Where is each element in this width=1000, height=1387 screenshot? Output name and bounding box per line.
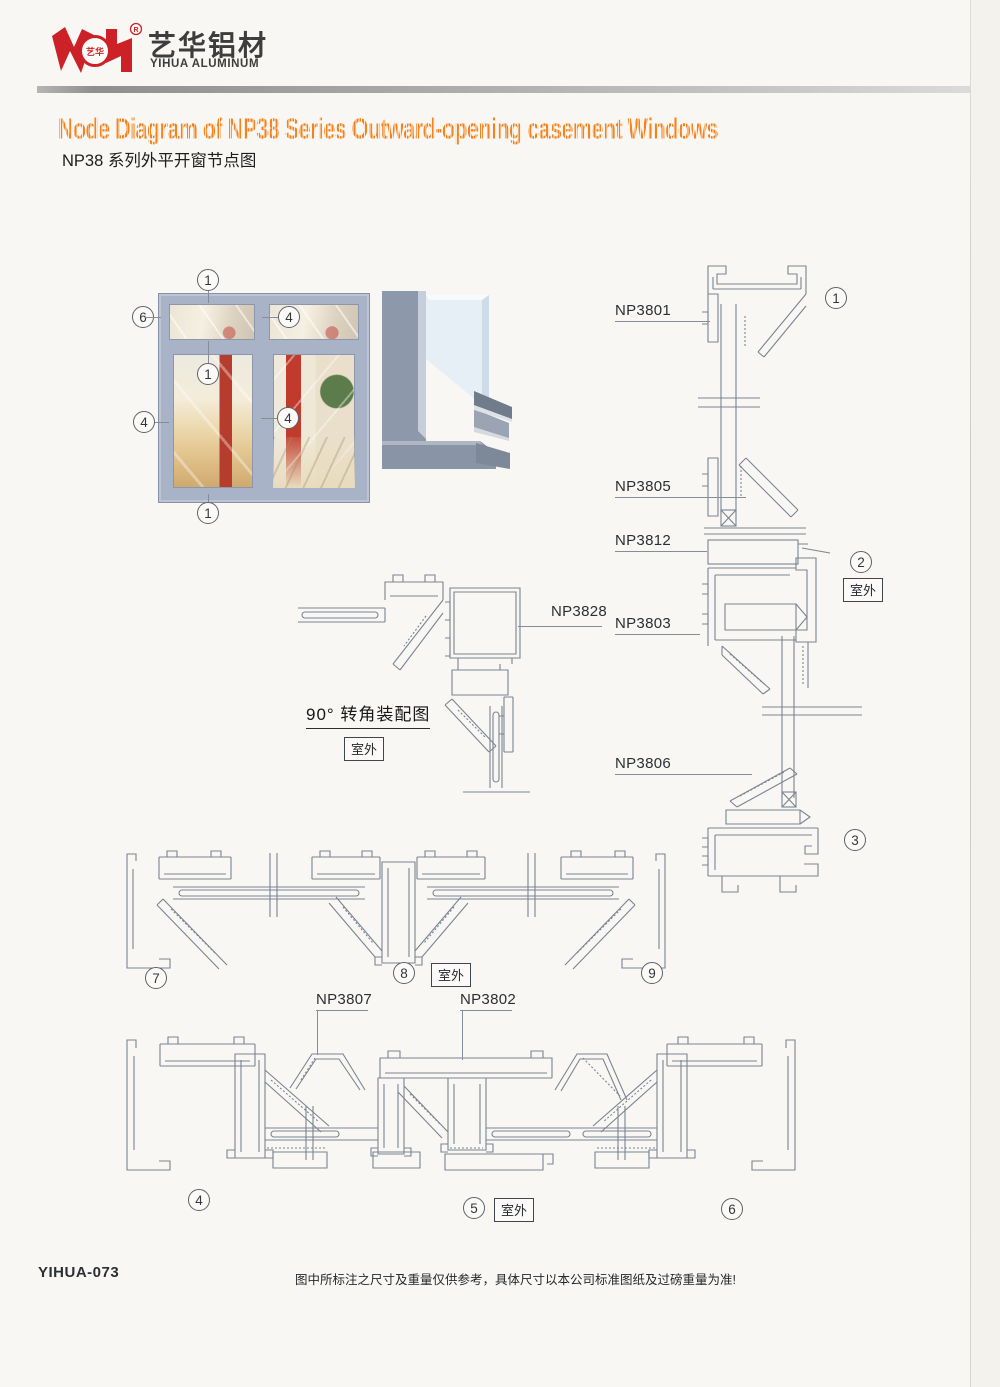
- callout-text: 2: [857, 555, 865, 570]
- callout-text: 1: [832, 291, 840, 306]
- header-divider: [37, 86, 985, 93]
- profile-label-np3806: NP3806: [615, 755, 671, 772]
- window-callout-1-mid: 1: [197, 363, 219, 385]
- document-code: YIHUA-073: [38, 1264, 119, 1281]
- brand-name-en: YIHUA ALUMINUM: [150, 58, 259, 70]
- callout-leader: [208, 494, 209, 502]
- outdoor-box-detail2: 室外: [843, 578, 883, 602]
- outdoor-box-detail8: 室外: [431, 963, 471, 987]
- page-title-cn: NP38 系列外平开窗节点图: [62, 147, 256, 171]
- callout-leader: [261, 418, 277, 419]
- callout-text: 3: [851, 833, 859, 848]
- outdoor-box-detail5: 室外: [494, 1198, 534, 1222]
- outdoor-box-corner: 室外: [344, 737, 384, 761]
- corner-assembly-caption: 90° 转角装配图: [306, 700, 430, 729]
- detail-callout-2: 2: [850, 551, 872, 573]
- profile-label-np3828: NP3828: [551, 603, 607, 620]
- callout-text: 4: [195, 1193, 203, 1208]
- callout-text: 6: [728, 1202, 736, 1217]
- callout-leader: [208, 291, 209, 303]
- label-leader: [615, 321, 710, 322]
- window-callout-1-top: 1: [197, 269, 219, 291]
- callout-leader: [145, 317, 161, 318]
- label-leader: [518, 626, 602, 627]
- footer-disclaimer: 图中所标注之尺寸及重量仅供参考，具体尺寸以本公司标准图纸及过磅重量为准!: [295, 1269, 736, 1288]
- detail-callout-5: 5: [463, 1197, 485, 1219]
- label-leader: [316, 1010, 368, 1011]
- horizontal-section-row-456: [115, 1028, 815, 1186]
- label-leader: [615, 774, 752, 775]
- page-title-en: Node Diagram of NP38 Series Outward-open…: [58, 112, 718, 146]
- yihua-logo-icon: 艺华 R: [44, 20, 144, 82]
- profile-label-np3805: NP3805: [615, 478, 671, 495]
- profile-label-np3802: NP3802: [460, 991, 516, 1008]
- detail-callout-4: 4: [188, 1189, 210, 1211]
- scanned-catalog-page: 艺华 R 艺华铝材 YIHUA ALUMINUM Node Diagram of…: [0, 0, 1000, 1387]
- horizontal-section-row-789: [115, 845, 695, 977]
- callout-text: 4: [140, 415, 148, 430]
- logo-seal-text: 艺华: [86, 46, 104, 57]
- profile-label-np3807: NP3807: [316, 991, 372, 1008]
- label-leader: [615, 551, 707, 552]
- callout-leader: [208, 341, 209, 363]
- profile-label-np3801: NP3801: [615, 302, 671, 319]
- interior-floor: [273, 437, 355, 488]
- profile-3d-render: [382, 291, 518, 483]
- window-callout-4-left: 4: [133, 411, 155, 433]
- callout-text: 1: [204, 367, 212, 382]
- callout-text: 1: [204, 273, 212, 288]
- callout-text: 7: [152, 971, 160, 986]
- label-leader: [462, 1010, 463, 1060]
- window-callout-4-transom: 4: [278, 306, 300, 328]
- label-leader: [317, 1010, 318, 1055]
- callout-text: 4: [285, 310, 293, 325]
- label-leader: [460, 1010, 512, 1011]
- detail-callout-3: 3: [844, 829, 866, 851]
- registered-mark: R: [133, 27, 138, 34]
- callout-leader: [262, 317, 278, 318]
- page-edge-strip: [971, 0, 1000, 1387]
- detail-callout-6: 6: [721, 1198, 743, 1220]
- corner-assembly-drawing: [298, 566, 538, 801]
- profile-label-np3803: NP3803: [615, 615, 671, 632]
- detail-callout-7: 7: [145, 967, 167, 989]
- callout-text: 5: [470, 1201, 478, 1216]
- callout-leader: [155, 422, 169, 423]
- window-photo: [158, 293, 370, 503]
- label-leader: [615, 634, 700, 635]
- callout-text: 1: [204, 506, 212, 521]
- window-callout-1-bottom: 1: [197, 502, 219, 524]
- transom-pane-left: [169, 304, 255, 340]
- window-callout-4-center: 4: [277, 407, 299, 429]
- detail-callout-8: 8: [393, 962, 415, 984]
- detail-callout-1: 1: [825, 287, 847, 309]
- profile-label-np3812: NP3812: [615, 532, 671, 549]
- callout-text: 8: [400, 966, 408, 981]
- label-leader: [615, 497, 746, 498]
- callout-text: 9: [648, 966, 656, 981]
- callout-text: 4: [284, 411, 292, 426]
- detail-callout-9: 9: [641, 962, 663, 984]
